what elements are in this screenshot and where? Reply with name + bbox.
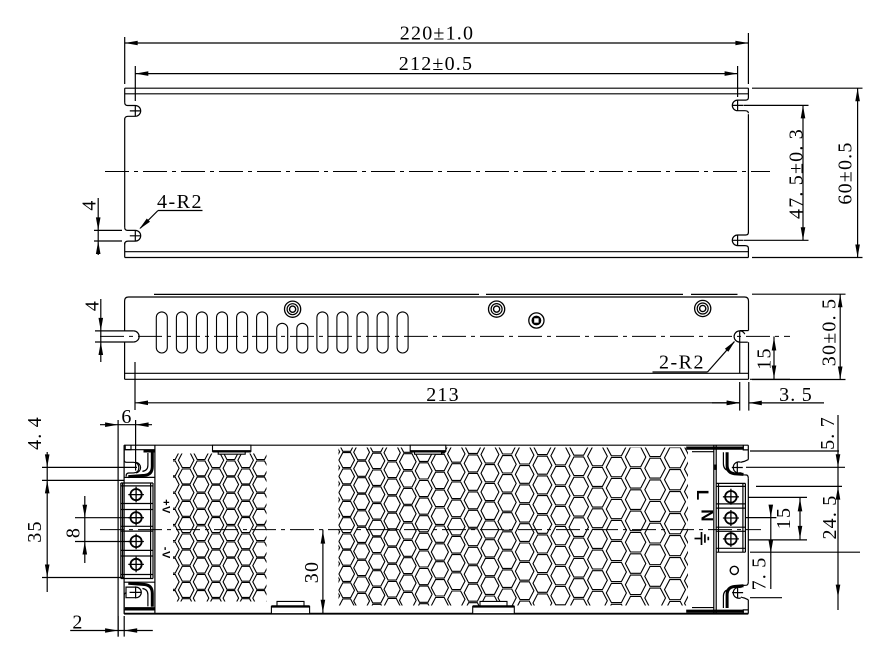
svg-text:2: 2 xyxy=(72,612,83,634)
svg-text:3. 5: 3. 5 xyxy=(779,384,813,406)
svg-text:8: 8 xyxy=(63,527,85,538)
svg-text:220±1.0: 220±1.0 xyxy=(400,23,474,45)
svg-text:4: 4 xyxy=(79,199,101,210)
svg-text:7. 5: 7. 5 xyxy=(749,557,771,591)
svg-text:15: 15 xyxy=(754,347,776,369)
svg-text:30±0. 5: 30±0. 5 xyxy=(819,298,841,366)
svg-text:212±0.5: 212±0.5 xyxy=(399,53,473,75)
svg-text:N: N xyxy=(698,509,717,522)
svg-text:4: 4 xyxy=(82,300,104,311)
svg-text:30: 30 xyxy=(301,561,323,583)
svg-text:-V: -V xyxy=(160,547,172,559)
svg-text:213: 213 xyxy=(426,384,460,406)
svg-text:4-R2: 4-R2 xyxy=(157,191,203,213)
svg-text:4. 4: 4. 4 xyxy=(24,416,46,450)
svg-text:L: L xyxy=(693,490,712,502)
svg-text:6: 6 xyxy=(121,406,132,428)
svg-text:5. 7: 5. 7 xyxy=(817,416,839,450)
svg-text:35: 35 xyxy=(24,520,46,542)
svg-text:24. 5: 24. 5 xyxy=(819,494,841,539)
svg-text:60±0.5: 60±0.5 xyxy=(835,141,857,204)
svg-text:+V: +V xyxy=(160,499,172,514)
svg-text:47. 5±0. 3: 47. 5±0. 3 xyxy=(786,128,808,219)
svg-text:15: 15 xyxy=(773,507,795,529)
svg-text:2-R2: 2-R2 xyxy=(659,352,705,374)
